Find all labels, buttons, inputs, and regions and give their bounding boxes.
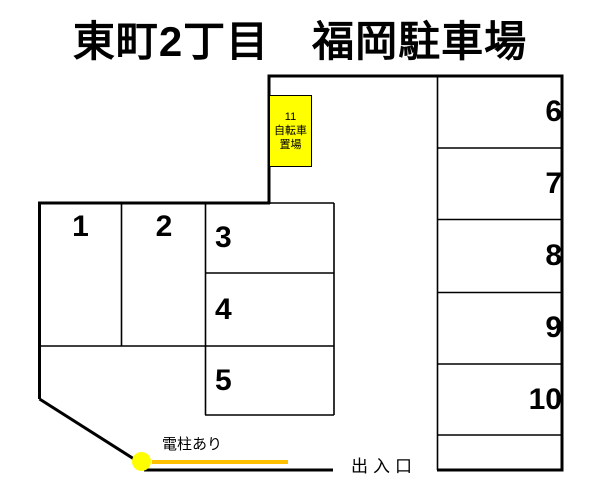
parking-lot-map: 東町2丁目 福岡駐車場: [0, 0, 600, 501]
stall-label-6: 6: [438, 76, 571, 148]
bicycle-area-number: 11: [285, 110, 296, 124]
utility-pole-icon: [132, 452, 151, 471]
bicycle-parking-area: 11 自転車 置場: [269, 95, 312, 167]
stall-label-10: 10: [438, 364, 571, 435]
bicycle-area-label-line1: 自転車: [274, 124, 307, 138]
stall-label-7: 7: [438, 148, 571, 219]
stall-label-3: 3: [206, 203, 343, 273]
entrance-exit-label: 出入口: [351, 452, 417, 477]
stall-label-9: 9: [438, 292, 571, 364]
stall-label-2: 2: [122, 203, 206, 355]
utility-pole-label: 電柱あり: [162, 433, 222, 454]
bicycle-area-label-line2: 置場: [280, 138, 302, 152]
stall-label-1: 1: [39, 203, 122, 355]
stall-label-5: 5: [206, 346, 343, 415]
stall-label-4: 4: [206, 273, 343, 346]
stall-label-8: 8: [438, 219, 571, 292]
